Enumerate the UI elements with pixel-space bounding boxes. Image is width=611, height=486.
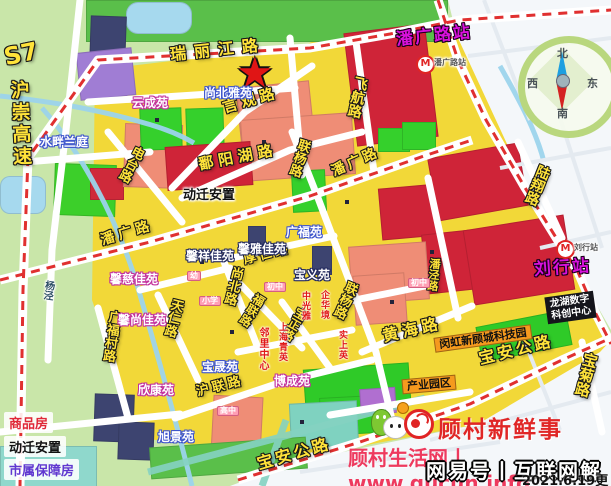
sina-weibo-icon [404, 409, 434, 439]
city-planning-map: S7 沪崇高速 瑞丽江路 言观路 电台路 飞航路 鄱阳湖路 联杨路 联杨路 潘广… [0, 0, 611, 486]
station-marker-panguanglu: 潘广路站 [434, 59, 466, 67]
station-label-liuhang: 刘行站 [533, 258, 591, 279]
poi-label-zhongguangya: 中光雅 [300, 291, 309, 321]
compass-rose: 北 南 西 东 [518, 36, 611, 138]
estate-label-shangbei-yayuan: 尚北雅苑 [204, 87, 252, 99]
block-greenland [139, 107, 182, 150]
estate-label-baoyi: 宝义苑 [294, 269, 330, 281]
legend-item-resettlement: 动迁安置 [4, 436, 66, 457]
compass-east-label: 东 [587, 75, 598, 91]
annotation-dongqian: 动迁安置 [183, 189, 235, 202]
estate-label-yuncheng: 云成苑 [132, 97, 168, 109]
estate-label-shuipan-lanting: 水畔兰庭 [40, 136, 88, 148]
pond [0, 176, 46, 214]
compass-north-label: 北 [557, 45, 568, 61]
map-marker-dot [300, 420, 304, 424]
block-resettlement [352, 272, 407, 326]
brand-account-name: 顾村新鲜事 [438, 410, 563, 444]
legend-item-commodity-housing: 商品房 [4, 412, 53, 433]
metro-station-icon: M [556, 240, 575, 259]
road-label-s7: S7 [2, 39, 40, 70]
estate-label-xinshang: 馨尚佳苑 [118, 314, 166, 326]
compass-hub [556, 74, 570, 88]
estate-label-guangfuyuan: 广福苑 [286, 226, 322, 238]
poi-tag-middle-school: 初中 [408, 278, 430, 288]
estate-label-xujing: 旭景苑 [158, 431, 194, 443]
metro-station-icon: M [416, 55, 435, 74]
poi-tag-high-school: 高中 [217, 406, 239, 416]
compass-west-label: 西 [527, 75, 538, 91]
map-marker-dot [345, 200, 349, 204]
poi-label-neighborhood-center: 邻里中心 [257, 327, 267, 371]
block-greenland [402, 122, 436, 150]
estate-label-bocheng: 博成苑 [274, 375, 310, 387]
estate-label-baosheng: 宝晟苑 [202, 361, 238, 373]
map-marker-dot [430, 250, 434, 254]
legend-item-municipal-housing: 市属保障房 [4, 459, 79, 480]
block-public-purple [76, 47, 137, 101]
poi-label-shishangying: 实上英 [337, 330, 346, 360]
compass-south-label: 南 [557, 105, 568, 121]
poi-label-shanghaiqingying: 上海青英 [277, 322, 286, 362]
estate-label-xinkang: 欣康苑 [138, 384, 174, 396]
poi-tag-kindergarten: 幼 [187, 271, 201, 281]
estate-label-xinci: 馨慈佳苑 [110, 273, 158, 285]
pencil-icon [397, 402, 409, 414]
estate-label-xinxiang: 馨祥佳苑 [186, 250, 234, 262]
station-marker-liuhang: 刘行站 [574, 244, 598, 252]
map-marker-dot [155, 118, 159, 122]
estate-label-xinya: 馨雅佳苑 [238, 243, 286, 255]
map-marker-dot [390, 300, 394, 304]
poi-tag-middle-school: 初中 [264, 282, 286, 292]
map-updated-date: 2021.6.19更新 [522, 470, 611, 486]
map-marker-dot [230, 330, 234, 334]
road-label-huchong-expressway: 沪崇高速 [8, 80, 30, 169]
river-label-yangjing: 杨泾 [41, 279, 54, 300]
poi-tag-primary-school: 小学 [199, 296, 221, 306]
poi-label-qihuajing: 企华境 [319, 290, 328, 320]
pond [126, 2, 192, 34]
